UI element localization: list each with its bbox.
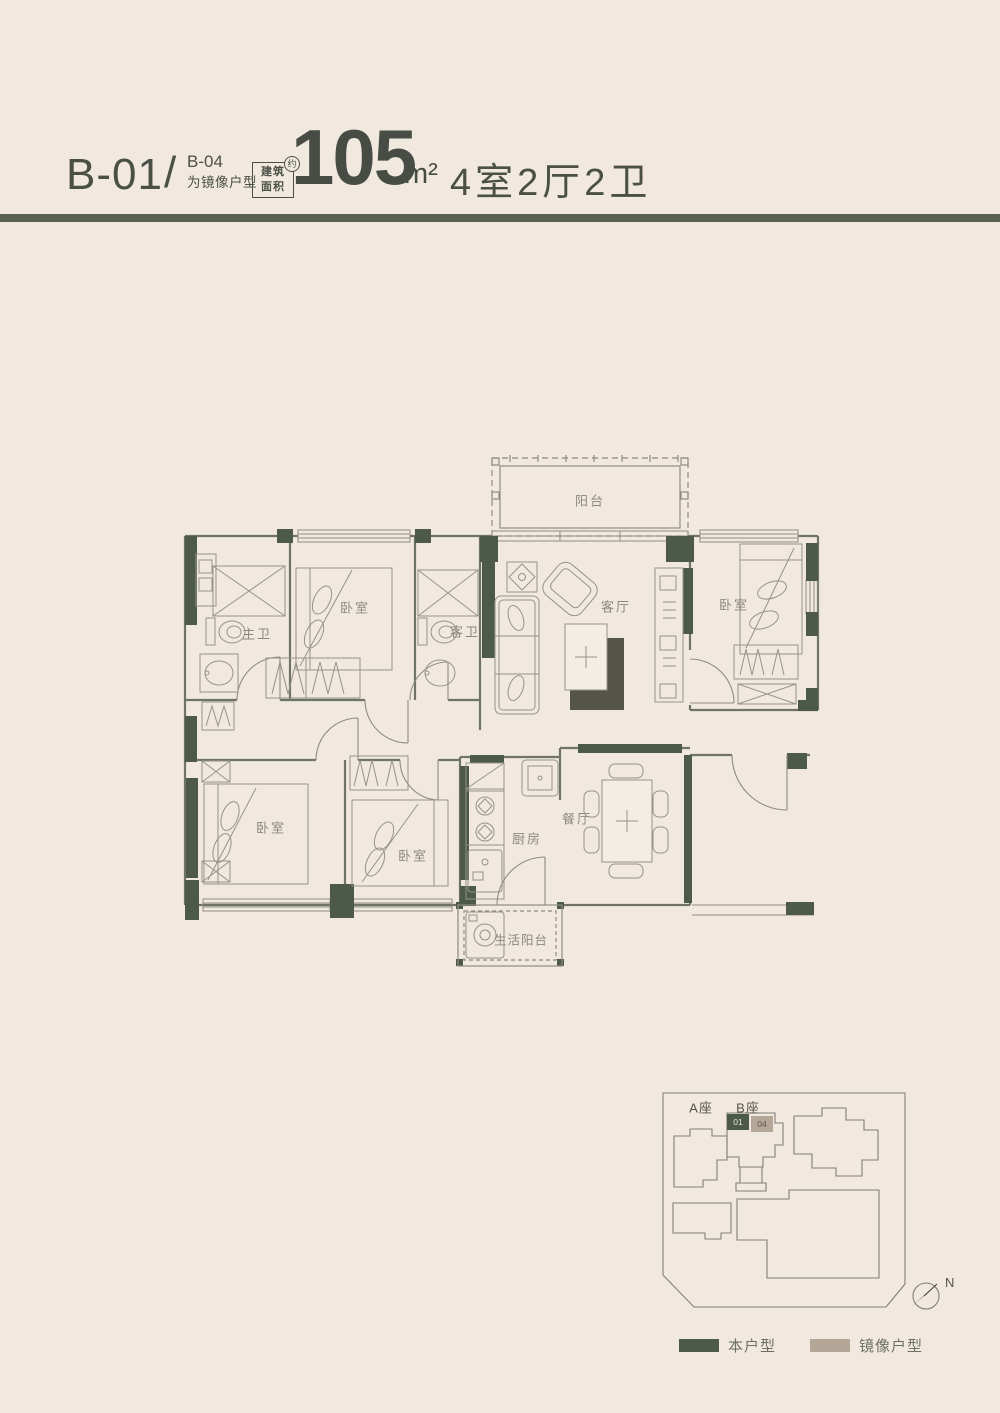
unit-04-label: 04 <box>757 1119 767 1129</box>
site-block-small <box>673 1203 731 1239</box>
room-label-master-bath: 主卫 <box>242 624 272 643</box>
bed-top-right <box>740 544 802 654</box>
room-label-guest-bath: 客卫 <box>450 622 480 641</box>
door-swings <box>237 657 787 905</box>
duct-shaft <box>655 568 683 702</box>
legend-item-this-unit: 本户型 <box>679 1335 776 1356</box>
legend: 本户型 镜像户型 <box>679 1335 923 1356</box>
mirror-unit-swatch <box>810 1339 850 1352</box>
legend-item-mirror-unit: 镜像户型 <box>810 1335 923 1356</box>
furniture <box>196 544 802 958</box>
compass-circle <box>913 1283 939 1309</box>
site-plan <box>663 1093 939 1309</box>
room-label-kitchen: 厨房 <box>512 829 542 848</box>
room-label-bedroom-tl: 卧室 <box>340 598 370 617</box>
north-label: N <box>945 1275 954 1290</box>
bed-top-left <box>296 568 392 670</box>
armchair <box>539 558 601 619</box>
site-block-large <box>737 1190 879 1278</box>
sofa <box>495 596 539 714</box>
floorplan-page: { "header": { "unit_code": "B-01", "slas… <box>0 0 1000 1413</box>
floorplan-drawing: 01 04 N <box>0 0 1000 1413</box>
unit-01-label: 01 <box>733 1117 743 1127</box>
site-boundary <box>663 1093 905 1307</box>
room-label-dining: 餐厅 <box>562 809 592 828</box>
room-label-living: 客厅 <box>601 597 631 616</box>
windows <box>203 530 818 915</box>
mirror-unit-label: 镜像户型 <box>859 1335 923 1356</box>
site-building-left <box>674 1129 727 1187</box>
coffee-table <box>565 624 607 690</box>
side-table <box>507 562 537 592</box>
room-label-bedroom-bm: 卧室 <box>398 846 428 865</box>
room-label-bedroom-tr: 卧室 <box>719 595 749 614</box>
this-unit-label: 本户型 <box>728 1335 776 1356</box>
walls <box>185 536 818 905</box>
room-label-balcony: 阳台 <box>575 491 605 510</box>
dining-set <box>584 764 668 878</box>
bed-bottom-middle <box>352 800 448 886</box>
tower-b-label: B座 <box>736 1098 760 1117</box>
this-unit-swatch <box>679 1339 719 1352</box>
room-label-bedroom-bl: 卧室 <box>256 818 286 837</box>
room-label-utility-balcony: 生活阳台 <box>494 930 548 949</box>
tower-a-label: A座 <box>689 1098 713 1117</box>
site-building-right <box>794 1108 878 1176</box>
